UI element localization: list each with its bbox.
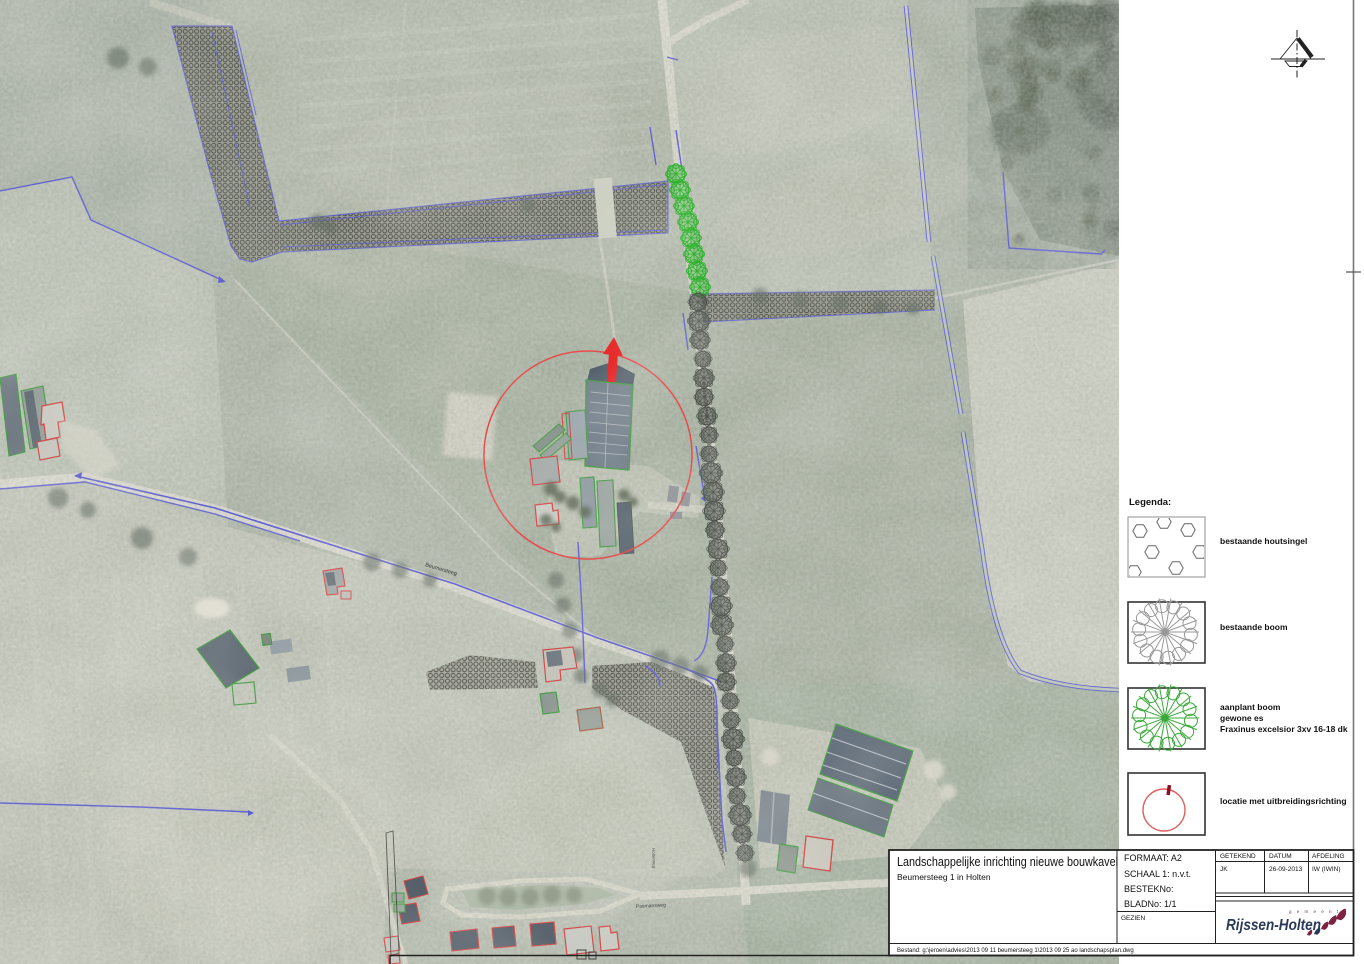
svg-text:Beumersteeg 1 in Holten: Beumersteeg 1 in Holten <box>897 872 991 882</box>
svg-text:Landschappelijke inrichting ni: Landschappelijke inrichting nieuwe bouwk… <box>897 854 1118 869</box>
svg-text:Fraxinus excelsior 3xv 16-18 d: Fraxinus excelsior 3xv 16-18 dk <box>1220 724 1348 734</box>
svg-text:AFDELING: AFDELING <box>1312 853 1345 860</box>
svg-text:gewone es: gewone es <box>1220 713 1264 723</box>
svg-text:BESTEKNo:: BESTEKNo: <box>1124 884 1174 894</box>
svg-text:locatie met uitbreidingsrichti: locatie met uitbreidingsrichting <box>1220 796 1347 806</box>
svg-text:aanplant boom: aanplant boom <box>1220 702 1281 712</box>
svg-text:Legenda:: Legenda: <box>1129 497 1171 508</box>
svg-text:SCHAAL 1: n.v.t.: SCHAAL 1: n.v.t. <box>1124 869 1191 879</box>
svg-text:BLADNo: 1/1: BLADNo: 1/1 <box>1124 899 1177 909</box>
svg-text:Bestand: g:\jeroen\advies\2013: Bestand: g:\jeroen\advies\2013 09 11 beu… <box>897 948 1134 954</box>
svg-text:GETEKEND: GETEKEND <box>1220 853 1256 860</box>
svg-text:IW (IWIN): IW (IWIN) <box>1312 866 1341 873</box>
svg-text:Rijssen-Holten: Rijssen-Holten <box>1226 917 1321 934</box>
svg-text:bestaande houtsingel: bestaande houtsingel <box>1220 536 1307 546</box>
svg-text:JK: JK <box>1220 866 1228 873</box>
svg-text:FORMAAT: A2: FORMAAT: A2 <box>1124 853 1182 863</box>
svg-text:bestaande boom: bestaande boom <box>1220 622 1288 632</box>
svg-text:DATUM: DATUM <box>1269 853 1292 860</box>
svg-text:26-09-2013: 26-09-2013 <box>1269 866 1303 873</box>
svg-text:GEZIEN: GEZIEN <box>1121 915 1146 922</box>
